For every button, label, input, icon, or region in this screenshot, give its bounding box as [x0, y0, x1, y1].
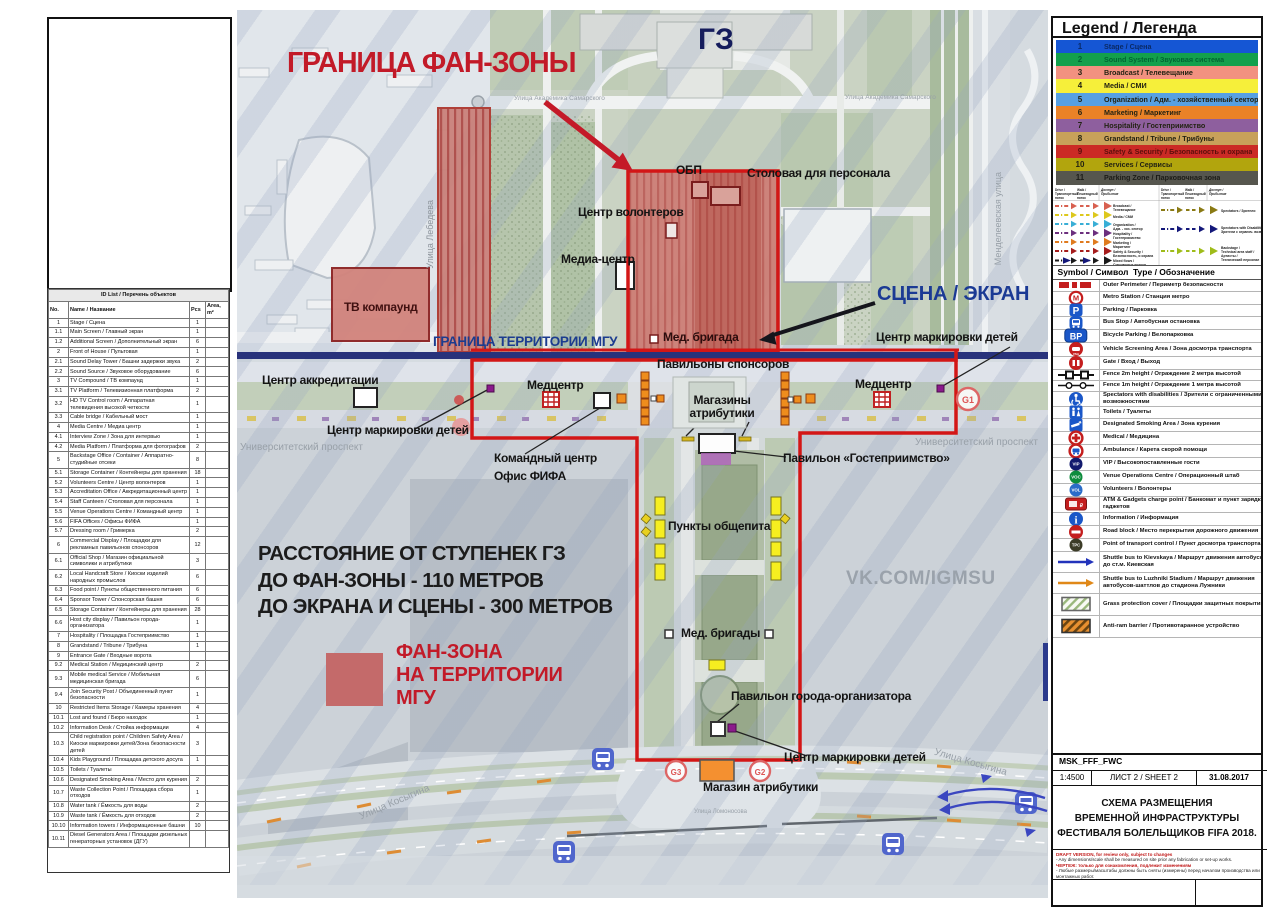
svg-text:Прибытие: Прибытие: [1209, 192, 1227, 196]
svg-text:Media / СМИ: Media / СМИ: [1113, 215, 1134, 219]
svg-text:VOC: VOC: [1071, 474, 1081, 479]
svg-text:Зрители с огранич. возм.: Зрители с огранич. возм.: [1221, 230, 1261, 234]
svg-text:G3: G3: [671, 768, 682, 777]
svg-text:Безопасность, и охрана: Безопасность, и охрана: [1113, 254, 1153, 258]
svg-text:Адм. - хоз. сектор: Адм. - хоз. сектор: [1113, 227, 1143, 231]
svg-text:VIP: VIP: [1072, 461, 1079, 466]
svg-text:М: М: [1073, 293, 1079, 302]
svg-text:TPC: TPC: [1072, 542, 1080, 547]
svg-text:Смешанные потоки: Смешанные потоки: [1113, 263, 1146, 265]
svg-text:Прибытие: Прибытие: [1101, 192, 1119, 196]
svg-text:Маркетинг: Маркетинг: [1113, 245, 1131, 249]
svg-text:Технический персонал: Технический персонал: [1221, 258, 1259, 262]
svg-text:Spectators / Зрители: Spectators / Зрители: [1221, 209, 1255, 213]
svg-text:G1: G1: [962, 395, 974, 405]
svg-text:VOL: VOL: [1071, 487, 1080, 492]
svg-text:Телевещание: Телевещание: [1113, 208, 1136, 212]
svg-text:поток: поток: [1077, 196, 1086, 200]
svg-text:BP: BP: [1070, 332, 1083, 342]
svg-text:поток: поток: [1055, 196, 1064, 200]
svg-text:Гостеприимство: Гостеприимство: [1113, 236, 1141, 240]
svg-text:поток: поток: [1185, 196, 1194, 200]
svg-text:поток: поток: [1161, 196, 1170, 200]
svg-text:G2: G2: [755, 768, 766, 777]
